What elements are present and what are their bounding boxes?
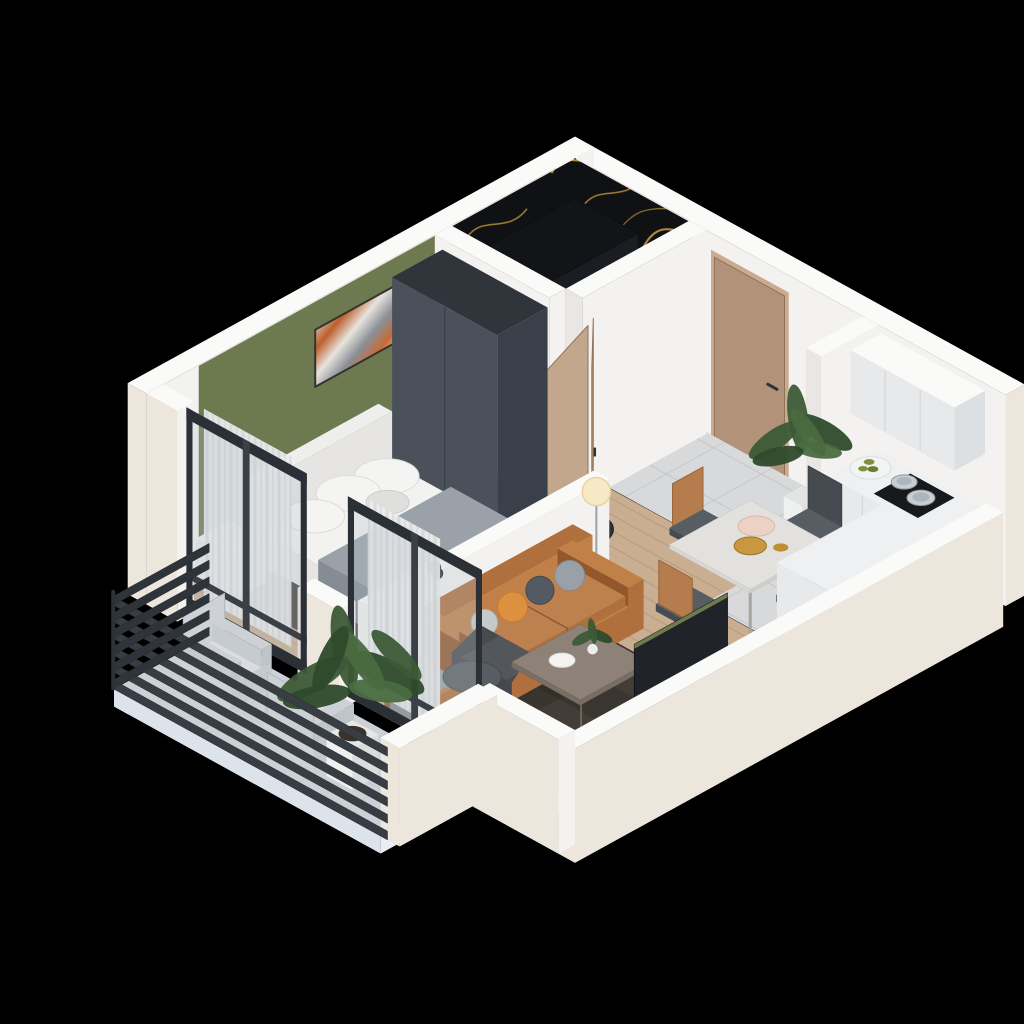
fruit-2 [868,466,879,472]
cooking-pot-1-lid [897,477,912,485]
bedroom-window-stile-right [301,470,307,674]
sofa-pillow-gray [555,561,585,591]
gold-cup [773,543,788,551]
sofa-pillow-dark [526,576,554,604]
pink-plate [738,516,775,536]
fruit-1 [864,459,875,465]
isometric-apartment-floorplan [0,0,1024,1024]
bedroom-window-stile-center [243,438,250,643]
cooking-pot-2-lid [912,492,929,502]
floorplan-stage [0,0,1024,1024]
coffee-table-book [549,653,575,667]
coffee-plant-pot [587,644,598,655]
sofa-pillow-orange [498,592,528,622]
gold-bowl [734,537,766,555]
fruit-3 [858,466,868,471]
living-window-stile-center [411,531,418,735]
floor-lamp-globe [582,478,610,506]
